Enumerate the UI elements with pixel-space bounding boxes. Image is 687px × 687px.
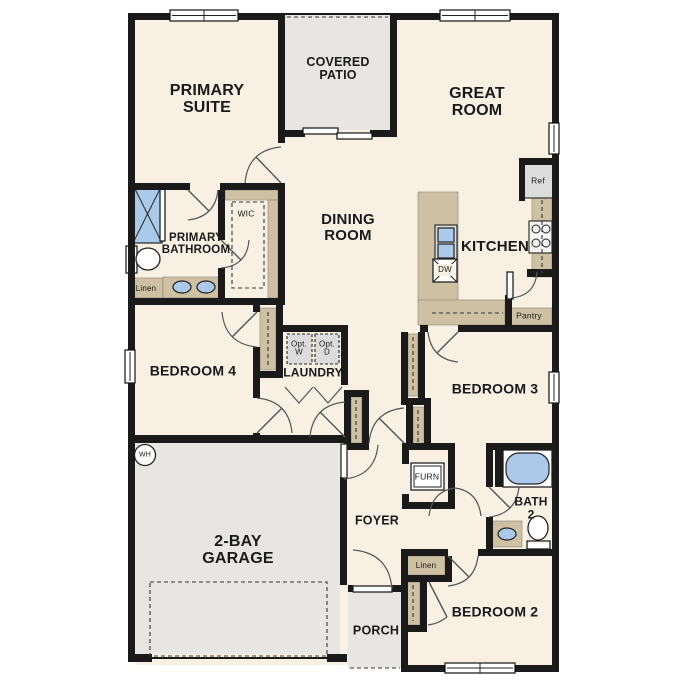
feature-label-linen-primary: Linen <box>136 285 157 293</box>
feature-label-linen-hall: Linen <box>416 562 437 570</box>
wic-shelf-right <box>268 200 278 298</box>
window-bedroom2 <box>445 663 515 673</box>
room-label-bath-2: BATH 2 <box>514 495 547 520</box>
bedroom4-closet <box>260 308 276 370</box>
room-label-primary-bathroom: PRIMARY BATHROOM <box>162 232 230 256</box>
room-label-primary-suite: PRIMARY SUITE <box>170 83 245 117</box>
room-label-covered-patio: COVERED PATIO <box>306 56 369 83</box>
window-bedroom3 <box>549 372 559 403</box>
kitchen-sink <box>435 225 457 260</box>
feature-label-opt-dryer: Opt. D <box>319 341 335 358</box>
room-label-kitchen: KITCHEN <box>461 239 529 255</box>
room-label-porch: PORCH <box>353 624 399 637</box>
appliance-label-dishwasher: DW <box>438 266 452 274</box>
room-label-bedroom-2: BEDROOM 2 <box>452 605 539 620</box>
window-great-room-right <box>549 123 559 154</box>
feature-label-furnace: FURN <box>415 473 439 482</box>
shower-fixture <box>133 185 165 243</box>
room-label-laundry: LAUNDRY <box>283 367 343 380</box>
room-label-garage: 2-BAY GARAGE <box>202 534 273 568</box>
window-great-room-top <box>440 10 510 21</box>
appliance-label-water-heater: WH <box>139 451 151 458</box>
appliance-label-refrigerator: Ref <box>531 177 545 186</box>
room-label-great-room: GREAT ROOM <box>449 86 505 120</box>
feature-label-pantry: Pantry <box>516 312 542 321</box>
stove-icon <box>529 221 552 253</box>
room-label-bedroom-3: BEDROOM 3 <box>452 382 539 397</box>
primary-sink-left <box>173 281 191 293</box>
wic-shelf-top <box>225 190 278 200</box>
primary-sink-right <box>197 281 215 293</box>
tub-fixture <box>503 450 552 487</box>
bath2-sink <box>498 528 516 540</box>
room-label-dining-room: DINING ROOM <box>321 212 375 244</box>
floor-plan: PRIMARY SUITE COVERED PATIO GREAT ROOM D… <box>0 0 687 687</box>
room-label-bedroom-4: BEDROOM 4 <box>150 364 237 379</box>
feature-label-wic: WIC <box>237 210 254 219</box>
floor-plan-drawing <box>0 0 687 687</box>
window-primary-suite <box>170 10 238 21</box>
room-label-foyer: FOYER <box>355 514 399 527</box>
window-bedroom4 <box>125 350 135 383</box>
feature-label-opt-washer: Opt. W <box>291 341 307 358</box>
